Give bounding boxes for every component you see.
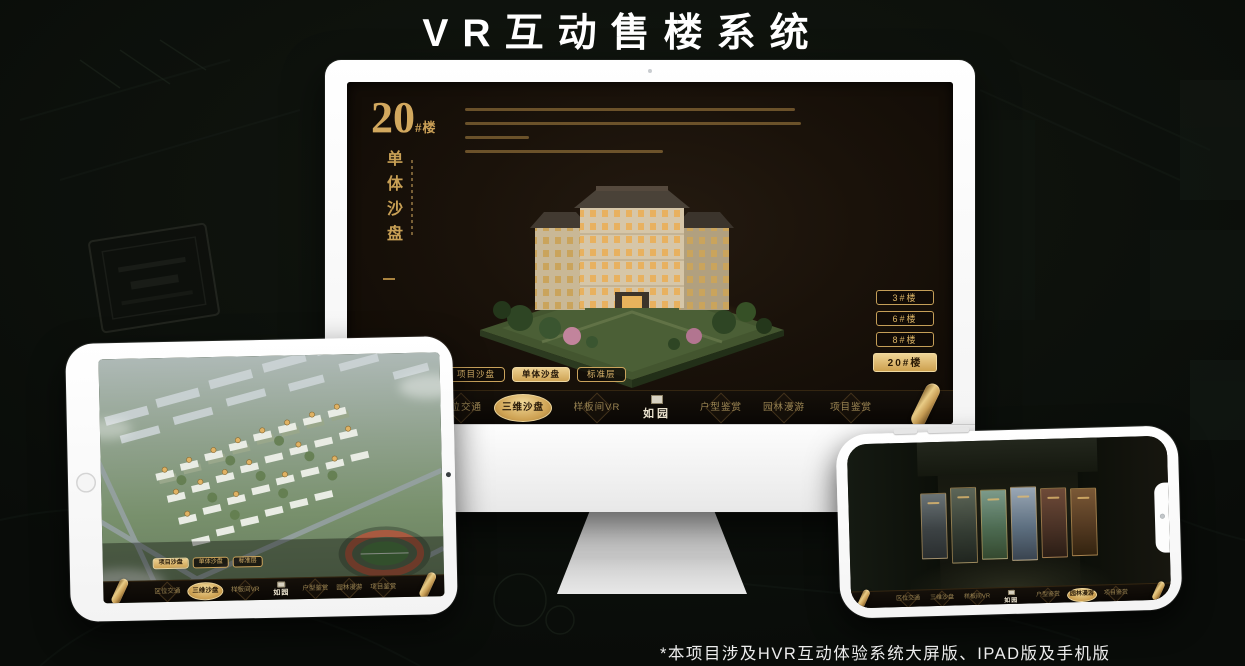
ipad-camera-icon [446, 472, 451, 477]
ipad-home-button[interactable] [76, 472, 96, 492]
footnote-text: *本项目涉及HVR互动体验系统大屏版、IPAD版及手机版 [660, 640, 1111, 664]
brand-logo-text: 如园 [1004, 594, 1018, 603]
phone-device: 区位交通 三维沙盘 样板间VR 如园 户型鉴赏 园林漫游 项目鉴赏 [835, 425, 1182, 618]
nav-item-garden-roam[interactable]: 园林漫游 [754, 391, 814, 424]
building-button-8[interactable]: 8#楼 [876, 332, 934, 347]
tab-single-building-sandbox[interactable]: 单体沙盘 [193, 557, 229, 569]
view-subtitle-vertical: 单体沙盘 [380, 150, 404, 250]
building-selector-group: 3#楼 6#楼 8#楼 20#楼 [873, 290, 937, 372]
scroll-ornament-icon[interactable] [1151, 580, 1166, 601]
tab-project-sandbox[interactable]: 项目沙盘 [153, 558, 189, 570]
sandbox-tabs-ipad: 项目沙盘 单体沙盘 标准层 [153, 556, 263, 569]
phone-camera-icon [1160, 514, 1165, 519]
scroll-ornament-icon[interactable] [909, 381, 943, 424]
nav-item-3d-sandbox[interactable]: 三维沙盘 [493, 391, 553, 424]
brand-seal-icon [651, 395, 663, 404]
tab-standard-floor[interactable]: 标准层 [233, 556, 263, 568]
scene-card[interactable] [920, 493, 948, 560]
scroll-ornament-icon[interactable] [418, 571, 437, 599]
building-number-suffix: #楼 [415, 120, 437, 135]
nav-item-garden-roam[interactable]: 园林漫游 [1065, 586, 1099, 604]
phone-notch [1154, 483, 1171, 553]
nav-item-floorplan[interactable]: 户型鉴赏 [691, 391, 751, 424]
page-title: VR互动售楼系统 [0, 2, 1245, 58]
phone-screen: 区位交通 三维沙盘 样板间VR 如园 户型鉴赏 园林漫游 项目鉴赏 [847, 436, 1171, 609]
phone-volume-button[interactable] [893, 429, 917, 435]
brand-logo[interactable]: 如园 [634, 391, 680, 424]
ipad-device: 项目沙盘 单体沙盘 标准层 区位交通 三维沙盘 样板间VR 如园 户型鉴赏 园林… [65, 336, 458, 622]
nav-item-floorplan[interactable]: 户型鉴赏 [1031, 586, 1065, 604]
brand-logo-text: 如园 [643, 405, 671, 421]
masterplan-aerial-view[interactable] [98, 352, 444, 603]
subtitle-english-decor [411, 160, 413, 238]
nav-item-location-traffic[interactable]: 区位交通 [147, 581, 187, 604]
subtitle-rule [383, 278, 395, 280]
scroll-ornament-icon[interactable] [856, 589, 871, 609]
nav-item-project-overview[interactable]: 项目鉴赏 [821, 391, 881, 424]
tab-project-sandbox[interactable]: 项目沙盘 [447, 367, 505, 382]
scene-card-gallery [848, 472, 1171, 577]
brand-logo[interactable]: 如园 [266, 578, 296, 601]
nav-item-showroom-vr[interactable]: 样板间VR [559, 391, 635, 424]
building-button-6[interactable]: 6#楼 [876, 311, 934, 326]
monitor-stand-neck [557, 512, 747, 594]
brand-logo[interactable]: 如园 [998, 588, 1024, 606]
scene-card[interactable] [980, 489, 1008, 560]
nav-item-project-overview[interactable]: 项目鉴赏 [363, 576, 403, 599]
nav-item-showroom-vr[interactable]: 样板间VR [223, 579, 267, 602]
monitor-camera-icon [648, 69, 652, 73]
nav-item-location-traffic[interactable]: 区位交通 [891, 590, 925, 608]
scene-card[interactable] [950, 487, 978, 564]
scene-card[interactable] [1070, 488, 1098, 557]
tab-standard-floor[interactable]: 标准层 [577, 367, 626, 382]
tab-single-building-sandbox[interactable]: 单体沙盘 [512, 367, 570, 382]
page-canvas: VR互动售楼系统 20#楼 单体沙盘 [0, 0, 1245, 666]
sandbox-tabs: 项目沙盘 单体沙盘 标准层 [447, 367, 626, 382]
building-button-20-selected[interactable]: 20#楼 [873, 353, 937, 372]
nav-item-3d-sandbox[interactable]: 三维沙盘 [185, 580, 225, 603]
ipad-screen: 项目沙盘 单体沙盘 标准层 区位交通 三维沙盘 样板间VR 如园 户型鉴赏 园林… [98, 352, 444, 603]
nav-item-3d-sandbox[interactable]: 三维沙盘 [925, 589, 959, 607]
brand-logo-text: 如园 [273, 587, 289, 597]
scene-card[interactable] [1040, 487, 1068, 558]
phone-volume-button[interactable] [927, 427, 969, 433]
nav-item-project-overview[interactable]: 项目鉴赏 [1099, 585, 1133, 603]
panorama-lintel [917, 438, 1098, 477]
scroll-ornament-icon[interactable] [110, 577, 129, 603]
building-3d-view[interactable] [432, 142, 832, 390]
building-number-heading: 20#楼 [371, 92, 437, 143]
building-button-3[interactable]: 3#楼 [876, 290, 934, 305]
scene-card[interactable] [1010, 486, 1038, 561]
nav-item-showroom-vr[interactable]: 样板间VR [959, 588, 995, 606]
